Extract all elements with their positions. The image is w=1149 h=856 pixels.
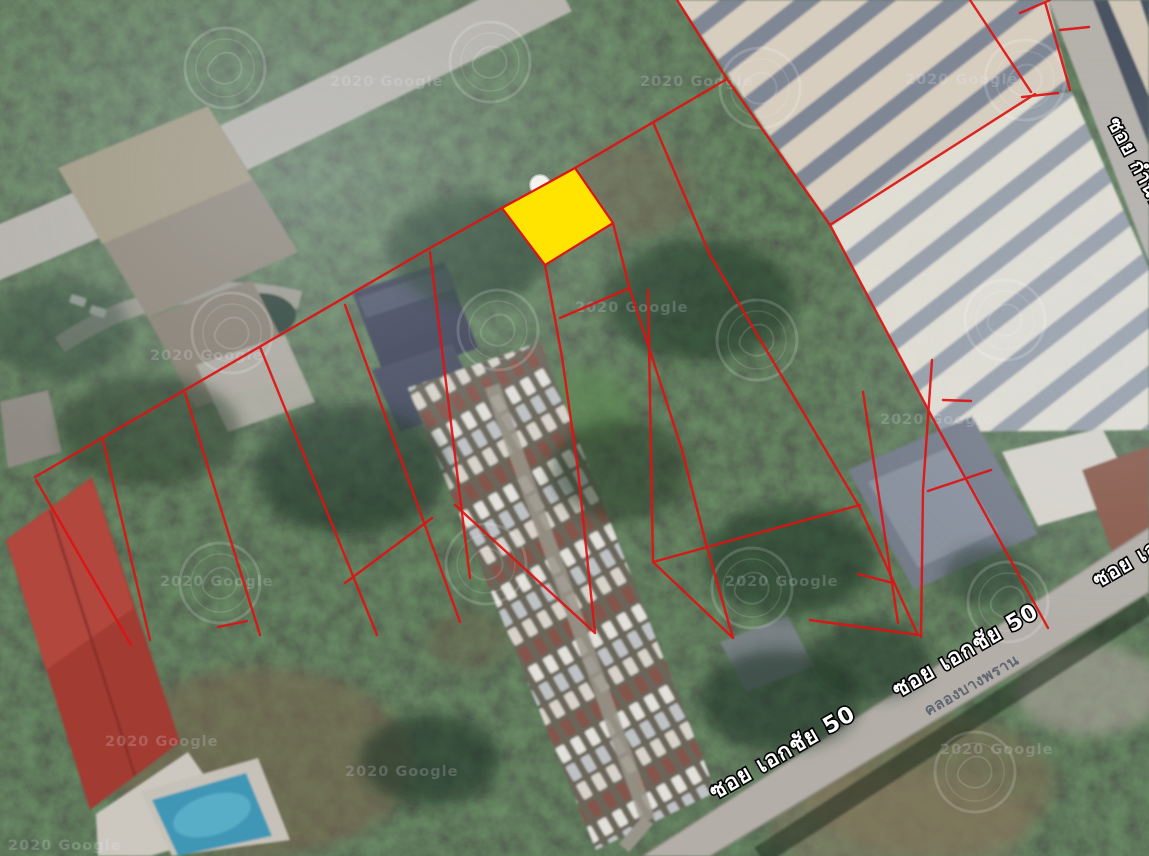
- watermark-text: 2020 Google: [940, 742, 1053, 758]
- watermark-text: 2020 Google: [575, 300, 688, 316]
- parcel-line: [943, 400, 971, 401]
- watermark-text: 2020 Google: [105, 734, 218, 750]
- haze: [800, 50, 1149, 650]
- watermark-text: 2020 Google: [725, 574, 838, 590]
- watermark-text: 2020 Google: [905, 72, 1018, 88]
- map-viewport[interactable]: 2020 Google 2020 Google 2020 Google 2020…: [0, 0, 1149, 856]
- imagery-layer: [0, 0, 1149, 856]
- watermark-text: 2020 Google: [640, 74, 753, 90]
- watermark-text: 2020 Google: [8, 838, 121, 854]
- watermark-text: 2020 Google: [150, 348, 263, 364]
- watermark-text: 2020 Google: [345, 764, 458, 780]
- dry-field: [426, 610, 510, 670]
- watermark-text: 2020 Google: [330, 74, 443, 90]
- watermark-text: 2020 Google: [160, 574, 273, 590]
- satellite-map[interactable]: 2020 Google 2020 Google 2020 Google 2020…: [0, 0, 1149, 856]
